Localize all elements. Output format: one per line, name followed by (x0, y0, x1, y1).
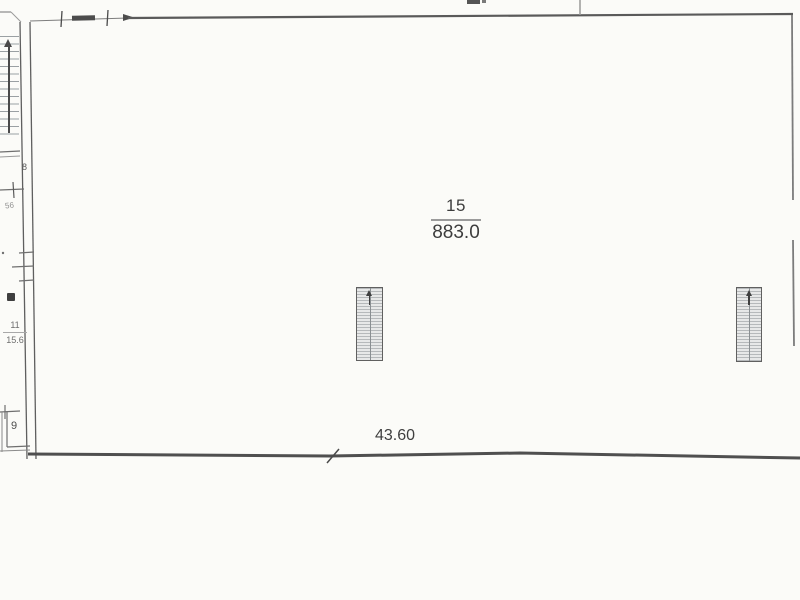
left-wall-outer-line (20, 22, 27, 459)
wall-dot (2, 252, 4, 254)
plan-linework (0, 0, 800, 600)
staircase-left (0, 36, 19, 136)
stair-shaft-right (736, 287, 762, 362)
window-sash (72, 15, 95, 20)
floor-plan-canvas: 15 883.0 43.60 8 56 11 15.6 9 (0, 0, 800, 600)
bottom-dimension-label: 43.60 (363, 427, 427, 445)
left-room-lower-label: 9 (11, 420, 17, 432)
arrow-shaft (8, 47, 10, 133)
cutoff-smudge-2 (482, 0, 486, 3)
arrow-shaft (748, 295, 750, 305)
partition-line-2 (0, 189, 24, 190)
fraction-line (431, 219, 481, 221)
left-room-mid-number: 11 (3, 320, 27, 330)
wall-rung-3 (19, 280, 34, 281)
partition-line-1 (0, 151, 20, 152)
top-wall-line (128, 14, 793, 18)
bottom-wall-line (28, 453, 800, 458)
partition-line-3 (0, 411, 20, 412)
partition-line-1b (0, 156, 20, 157)
right-wall-line-upper (792, 15, 793, 200)
cutoff-smudge (467, 0, 480, 4)
window-tick-right (107, 10, 108, 26)
arrow-shaft (369, 295, 371, 305)
room-number: 15 (430, 196, 482, 216)
left-wall-inner-line (30, 22, 36, 459)
left-small-dimension: 56 (5, 201, 15, 211)
wall-rung-2 (12, 266, 34, 267)
window-tick-left (61, 11, 62, 27)
door-marker (7, 293, 15, 301)
lower-box-bottom-line-2 (0, 450, 30, 451)
wall-rung-1 (19, 252, 34, 253)
left-room-upper-label: 8 (22, 162, 27, 172)
dimension-cross-upper (13, 182, 14, 198)
right-wall-line-lower (793, 240, 794, 346)
left-room-mid-area: 15.6 (0, 335, 30, 345)
room-area: 883.0 (420, 222, 492, 244)
stair-shaft-center (356, 287, 383, 361)
top-corner-connector-line (11, 12, 21, 22)
arrow-head (4, 39, 12, 47)
fraction-line-small (3, 332, 27, 333)
